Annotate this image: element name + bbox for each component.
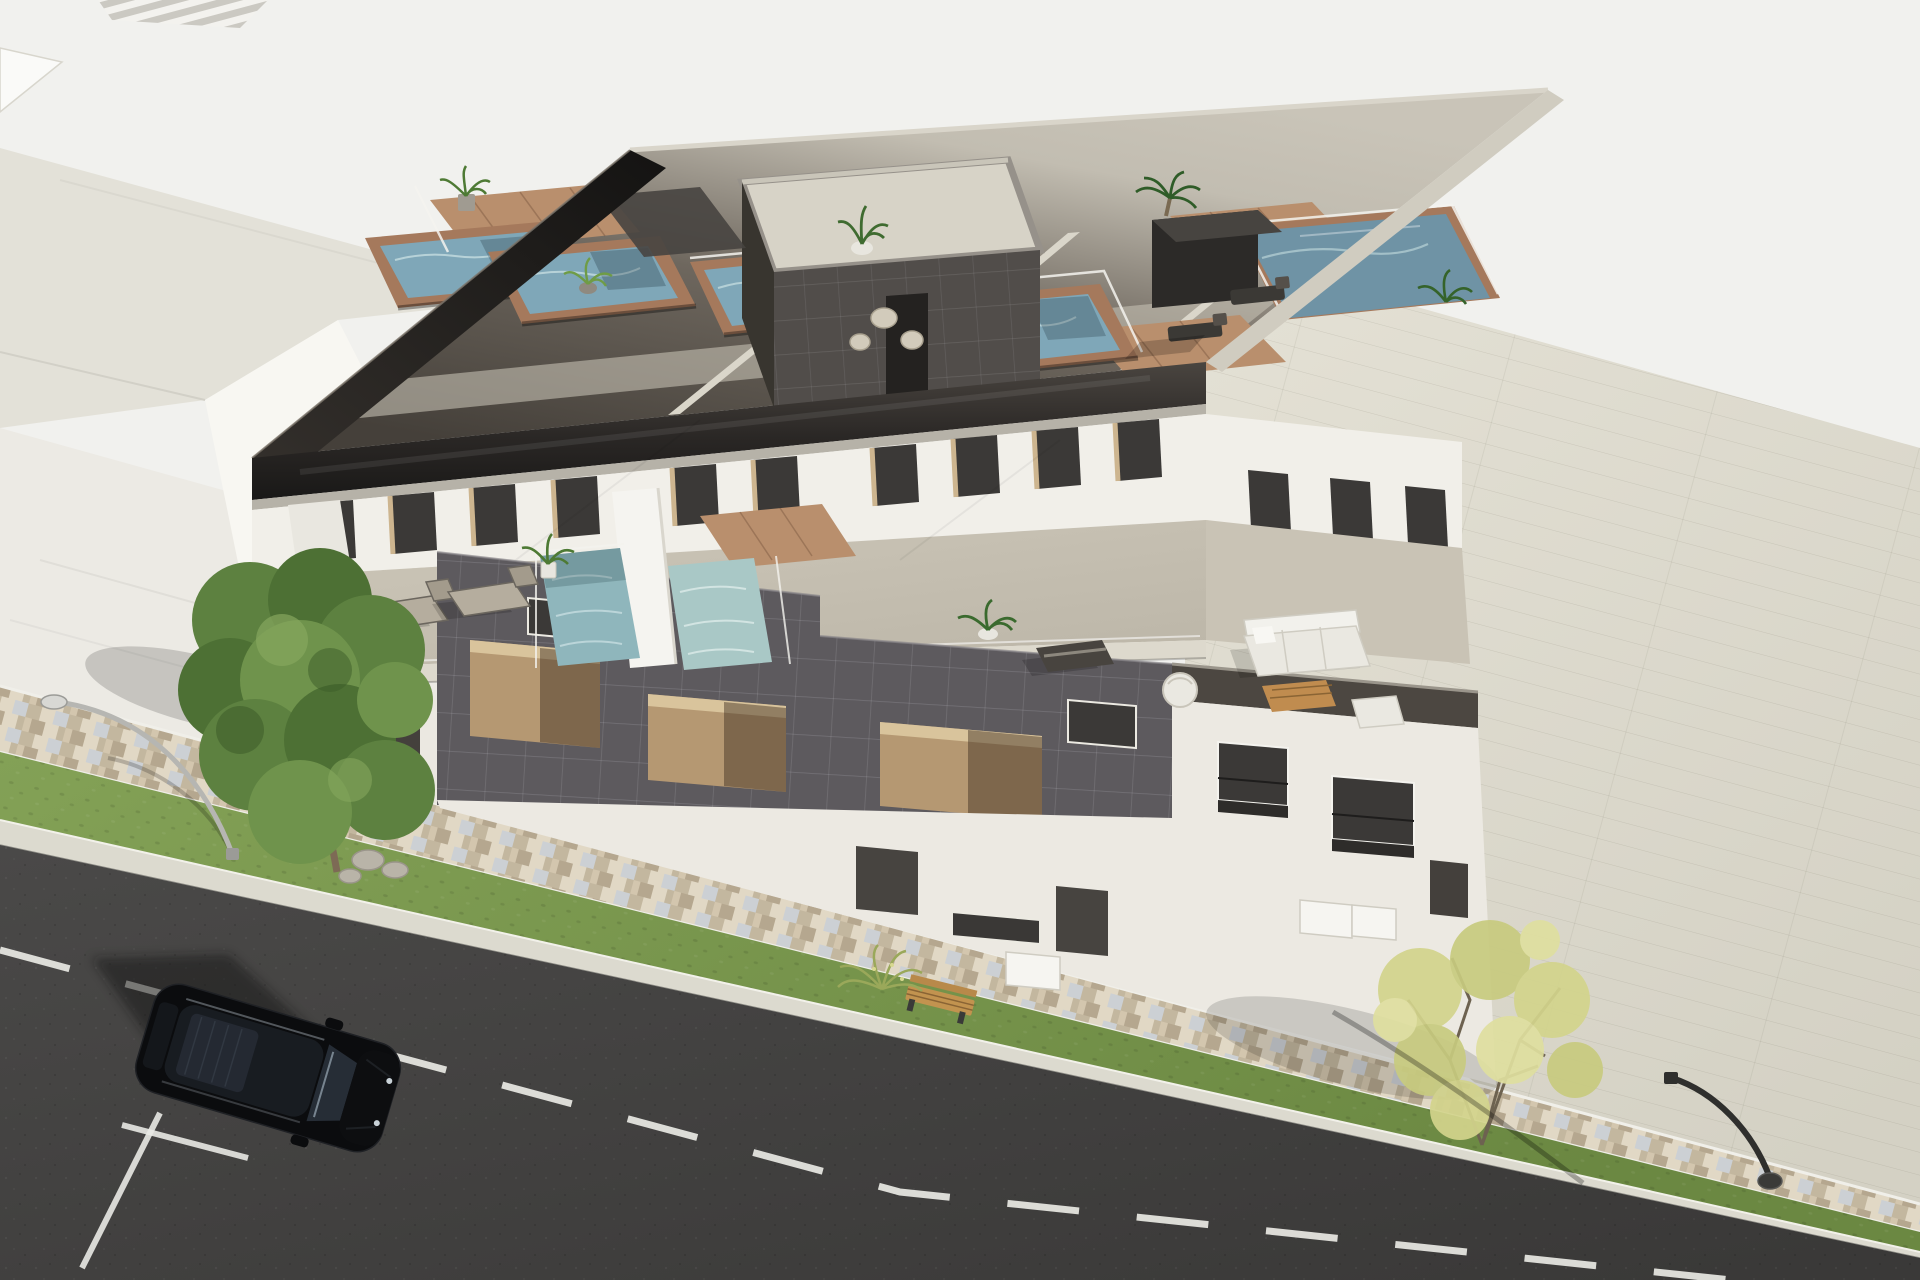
volume-opening-2 — [648, 694, 786, 792]
architectural-render — [0, 0, 1920, 1280]
armchair-small — [1352, 696, 1404, 728]
render-canvas — [0, 0, 1920, 1280]
round-armchair — [1163, 673, 1197, 707]
ac-unit-ground — [1006, 952, 1060, 990]
wing-door — [1430, 860, 1468, 918]
wing-window-1 — [1218, 742, 1288, 818]
second-floor-pool-right — [668, 558, 772, 670]
stair-core — [742, 160, 1040, 408]
volume-window-small-1 — [1068, 700, 1136, 748]
wing-window-2 — [1332, 776, 1414, 858]
entrance-door-2 — [856, 846, 918, 915]
entrance-door-3 — [1056, 886, 1108, 956]
volume-opening-3 — [880, 722, 1042, 820]
